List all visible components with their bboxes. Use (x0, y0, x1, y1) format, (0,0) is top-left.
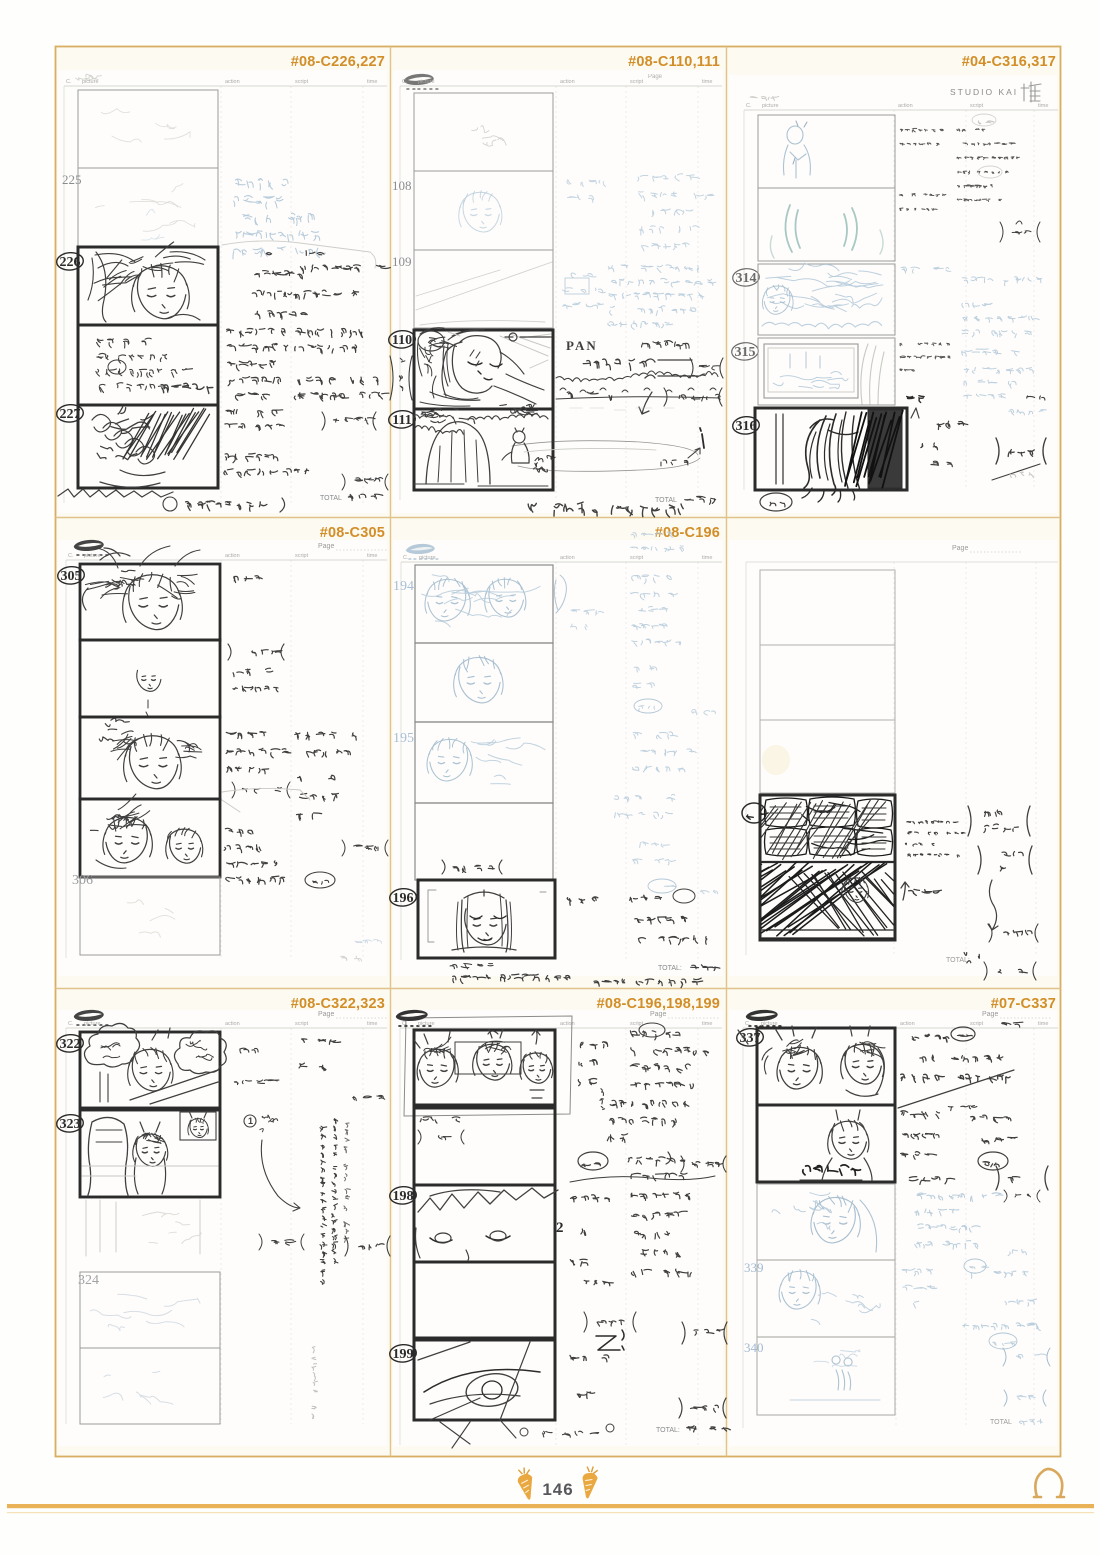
svg-text:C.: C. (403, 555, 409, 561)
svg-text:time: time (367, 79, 377, 85)
svg-text:324: 324 (78, 1273, 99, 1288)
svg-text:340: 340 (744, 1340, 764, 1355)
svg-text:2: 2 (556, 1220, 564, 1236)
svg-text:111: 111 (392, 413, 411, 428)
svg-text:TOTAL:: TOTAL: (656, 1427, 680, 1434)
svg-text:TOTAL: TOTAL (990, 1419, 1012, 1426)
svg-text:#04-C316,317: #04-C316,317 (962, 54, 1056, 70)
svg-text:time: time (367, 553, 377, 559)
svg-text:time: time (367, 1021, 377, 1027)
svg-text:script: script (970, 103, 984, 109)
svg-text:script: script (295, 553, 309, 559)
svg-text:#08-C196: #08-C196 (655, 525, 720, 541)
svg-text:time: time (1038, 1021, 1048, 1027)
svg-text:TOTAL: TOTAL (655, 497, 677, 504)
svg-text:Page: Page (650, 1011, 666, 1018)
svg-text:TOTAL:: TOTAL: (658, 965, 682, 972)
svg-text:TOTAL: TOTAL (320, 495, 342, 502)
svg-text:picture: picture (761, 1021, 778, 1027)
svg-text:picture: picture (419, 555, 436, 561)
svg-text:108: 108 (392, 178, 412, 193)
svg-text:script: script (970, 1021, 984, 1027)
svg-text:PAN: PAN (566, 338, 598, 353)
svg-text:action: action (560, 79, 575, 85)
svg-text:picture: picture (82, 79, 99, 85)
svg-text:time: time (702, 79, 712, 85)
svg-text:#08-C322,323: #08-C322,323 (291, 996, 385, 1012)
svg-text:C.: C. (745, 1021, 751, 1027)
svg-text:script: script (630, 79, 644, 85)
svg-text:picture: picture (762, 103, 779, 109)
svg-text:C.: C. (66, 79, 72, 85)
svg-text:action: action (560, 555, 575, 561)
svg-text:time: time (702, 1021, 712, 1027)
svg-text:C.: C. (68, 553, 74, 559)
svg-text:action: action (900, 1021, 915, 1027)
svg-text:Page: Page (318, 1011, 334, 1018)
svg-text:picture: picture (418, 1021, 435, 1027)
svg-text:195: 195 (393, 731, 414, 746)
svg-text:picture: picture (418, 79, 435, 85)
svg-text:225: 225 (62, 172, 82, 187)
svg-text:action: action (225, 553, 240, 559)
svg-text:#08-C226,227: #08-C226,227 (291, 54, 385, 70)
svg-text:C.: C. (68, 1021, 74, 1027)
svg-text:Page: Page (952, 545, 968, 552)
svg-text:C.: C. (402, 79, 408, 85)
svg-text:#08-C196,198,199: #08-C196,198,199 (597, 996, 720, 1012)
svg-text:339: 339 (744, 1260, 764, 1275)
svg-text:action: action (898, 103, 913, 109)
svg-text:#08-C305: #08-C305 (320, 525, 385, 541)
svg-text:Page: Page (318, 543, 334, 550)
svg-text:194: 194 (393, 579, 414, 594)
svg-text:C.: C. (746, 103, 752, 109)
svg-text:action: action (225, 79, 240, 85)
svg-text:#07-C337: #07-C337 (991, 996, 1056, 1012)
svg-text:script: script (630, 555, 644, 561)
svg-text:script: script (295, 1021, 309, 1027)
svg-text:109: 109 (392, 254, 412, 269)
svg-text:picture: picture (84, 553, 101, 559)
svg-text:script: script (295, 79, 309, 85)
svg-text:Page: Page (982, 1011, 998, 1018)
svg-text:1: 1 (248, 1116, 253, 1126)
svg-text:STUDIO KAI: STUDIO KAI (950, 87, 1018, 97)
svg-text:action: action (560, 1021, 575, 1027)
svg-text:C.: C. (402, 1021, 408, 1027)
svg-text:#08-C110,111: #08-C110,111 (628, 54, 720, 70)
svg-text:Page: Page (648, 74, 663, 80)
svg-text:action: action (225, 1021, 240, 1027)
svg-text:146: 146 (542, 1480, 573, 1499)
svg-text:time: time (1038, 103, 1048, 109)
svg-text:time: time (702, 555, 712, 561)
svg-text:306: 306 (72, 873, 93, 888)
svg-text:picture: picture (84, 1021, 101, 1027)
